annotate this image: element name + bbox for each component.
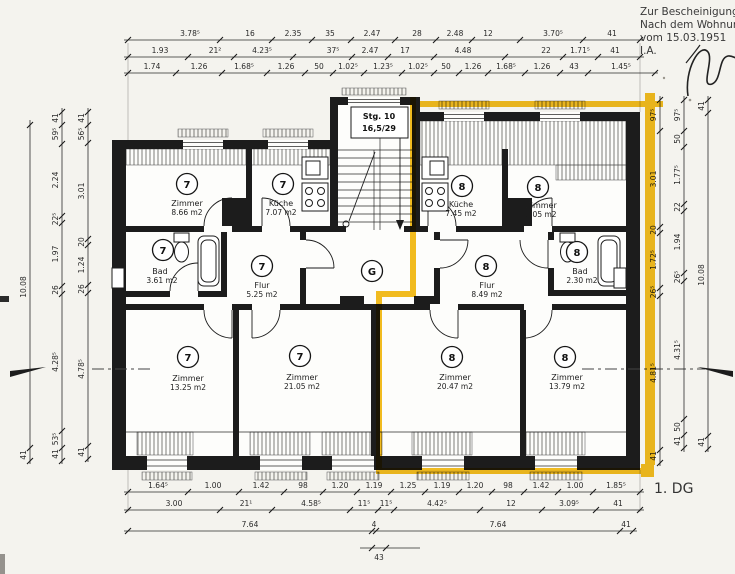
- dimension-label: 3.09⁵: [559, 499, 579, 508]
- dimension-label: 7.64: [242, 520, 259, 529]
- dimension-label: 41: [610, 46, 620, 55]
- radiator: [112, 268, 124, 288]
- room-name: Zimmer: [439, 373, 471, 382]
- dimension-label: 4.42⁵: [427, 499, 447, 508]
- room-unit: 8: [459, 182, 466, 193]
- dimension-label: 4.78⁵: [77, 359, 86, 379]
- dimension-label: 41: [697, 437, 706, 447]
- dimension-label: 1.64⁵: [148, 481, 168, 490]
- room-name: Flur: [254, 281, 270, 290]
- dimension-label: 98: [503, 481, 513, 490]
- room-name: Zimmer: [551, 373, 583, 382]
- dimension-label: 50: [673, 134, 682, 144]
- dimension-label: 1.26: [534, 62, 551, 71]
- dimension-label: 37⁵: [327, 46, 340, 55]
- room-name: Flur: [479, 281, 495, 290]
- dimension-label: 1.23⁵: [373, 62, 393, 71]
- dimension-label: 41: [613, 499, 623, 508]
- right-dimension-chains: 97⁵3.01201.72⁵26⁵4.81⁵41 97⁵501.77⁵221.9…: [649, 96, 711, 466]
- stair-label-2: 16,5/29: [362, 124, 396, 133]
- note-line-3: vom 15.03.1951: [640, 32, 726, 44]
- dimension-label: 50: [673, 422, 682, 432]
- dimension-label: 1.68⁵: [496, 62, 516, 71]
- dimension-label: 1.24: [77, 256, 86, 273]
- dimension-label: 4.31⁵: [673, 340, 682, 360]
- dimension-label: 50: [314, 62, 324, 71]
- room-area: 21.05 m2: [284, 382, 320, 391]
- dimension-label: 41: [51, 113, 60, 123]
- dimension-label: 1.68⁵: [234, 62, 254, 71]
- window: [142, 456, 192, 480]
- dimension-label: 98: [298, 481, 308, 490]
- dimension-label: 11⁵: [358, 499, 371, 508]
- corridor-letter: G: [368, 267, 376, 278]
- dimension-label: 26: [77, 284, 86, 294]
- dimension-label: 1.02⁵: [338, 62, 358, 71]
- top-dimension-chains: 3.78⁵162.35352.47282.48123.70⁵41 1.9321²…: [124, 29, 658, 76]
- dimension-label: 1.00: [205, 481, 222, 490]
- dimension-label: 21¹: [240, 499, 253, 508]
- room-area: 7.45 m2: [445, 209, 476, 218]
- section-arrow-left: [10, 367, 46, 377]
- dimension-label: 41: [697, 101, 706, 111]
- window: [263, 129, 313, 149]
- dimension-label: 3.70⁵: [543, 29, 563, 38]
- dimension-label: 1.42: [253, 481, 270, 490]
- room-unit: 7: [185, 353, 192, 364]
- kitchen-8-fixtures: [422, 157, 448, 211]
- room-unit: 8: [535, 183, 542, 194]
- section-arrow-right: [697, 367, 733, 377]
- dimension-label: 1.26: [465, 62, 482, 71]
- dimension-label: 3.78⁵: [180, 29, 200, 38]
- dimension-label: 4: [372, 520, 377, 529]
- room-name: Zimmer: [172, 374, 204, 383]
- dimension-label: 41: [673, 436, 682, 446]
- dimension-label: 1.74: [144, 62, 161, 71]
- dimension-label: 97⁵: [673, 109, 682, 122]
- dimension-label: 28: [412, 29, 422, 38]
- dimension-label: 11⁵: [380, 499, 393, 508]
- dimension-label: 22: [541, 46, 551, 55]
- dimension-label: 50: [441, 62, 451, 71]
- room-area: 8.49 m2: [471, 290, 502, 299]
- dimension-label: 10.08: [19, 276, 28, 298]
- room-unit: 8: [483, 262, 490, 273]
- highlight-right-bar: [645, 93, 655, 465]
- dimension-label: 4.23⁵: [252, 46, 272, 55]
- room-unit: 7: [297, 352, 304, 363]
- dimension-label: 2.47: [364, 29, 381, 38]
- room-unit: 8: [449, 353, 456, 364]
- room-area: 13.79 m2: [549, 382, 585, 391]
- room-name: Zimmer: [171, 199, 203, 208]
- dimension-label: 3.00: [166, 499, 183, 508]
- room-unit: 7: [280, 180, 287, 191]
- dimension-label: 26: [51, 285, 60, 295]
- dimension-label: 16: [245, 29, 255, 38]
- dimension-label: 7.64: [490, 520, 507, 529]
- dimension-label: 1.45⁵: [611, 62, 631, 71]
- dimension-label: 1.77⁵: [673, 165, 682, 185]
- dimension-label: 1.19: [434, 481, 451, 490]
- window: [327, 456, 379, 480]
- dimension-label: 1.19: [366, 481, 383, 490]
- note-line-1: Zur Bescheinigung: [640, 6, 735, 18]
- dimension-label: 59⁵: [51, 128, 60, 141]
- room-area: 8.66 m2: [171, 208, 202, 217]
- dimension-label: 1.20: [332, 481, 349, 490]
- window: [342, 88, 406, 105]
- dimension-label: 1.02⁵: [408, 62, 428, 71]
- dimension-label: 43: [374, 553, 384, 562]
- room-unit: 7: [184, 180, 191, 191]
- room-area: 7.07 m2: [265, 208, 296, 217]
- dimension-label: 41: [77, 113, 86, 123]
- floor-plan-sheet: Stg. 10 16,5/29 7: [0, 0, 735, 574]
- radiator: [614, 268, 626, 288]
- room-name: Zimmer: [286, 373, 318, 382]
- dimension-label: 1.94: [673, 233, 682, 250]
- dimension-label: 41: [19, 450, 28, 460]
- dimension-label: 2.47: [362, 46, 379, 55]
- room-name: Bad: [572, 267, 587, 276]
- left-dimension-chains: 10.0841 4159⁵2.2422⁵1.97264.28⁵53⁵41 415…: [19, 108, 91, 464]
- dimension-label: 17: [400, 46, 410, 55]
- note-line-4: I.A.: [640, 45, 657, 57]
- room-unit: 7: [259, 262, 266, 273]
- dimension-label: 41: [51, 449, 60, 459]
- certification-note: Zur Bescheinigung Nach dem Wohnun vom 15…: [640, 6, 735, 96]
- dimension-label: 1.97: [51, 245, 60, 262]
- dimension-label: 41: [77, 447, 86, 457]
- dimension-label: 1.00: [567, 481, 584, 490]
- dimension-label: 1.85⁵: [606, 481, 626, 490]
- corridor-label: G: [362, 261, 383, 282]
- dimension-label: 26⁵: [673, 271, 682, 284]
- dimension-label: 1.26: [191, 62, 208, 71]
- window: [255, 456, 307, 480]
- dimension-label: 20: [77, 237, 86, 247]
- dimension-label: 1.42: [533, 481, 550, 490]
- room-name: Küche: [449, 200, 473, 209]
- room-unit: 7: [160, 246, 167, 257]
- dimension-label: 41: [607, 29, 617, 38]
- window: [178, 129, 228, 149]
- dimension-label: 4.28⁵: [51, 352, 60, 372]
- dimension-label: 4.58⁵: [301, 499, 321, 508]
- dimension-label: 41: [621, 520, 631, 529]
- dimension-label: 1.26: [278, 62, 295, 71]
- dimension-label: 2.48: [447, 29, 464, 38]
- dimension-label: 53⁵: [51, 433, 60, 446]
- note-line-2: Nach dem Wohnun: [640, 19, 735, 31]
- dimension-label: 1.25: [400, 481, 417, 490]
- room-name: Küche: [269, 199, 293, 208]
- room-area: 9.05 m2: [525, 210, 556, 219]
- room-area: 13.25 m2: [170, 383, 206, 392]
- dimension-label: 4.48: [455, 46, 472, 55]
- floor-label: 1. DG: [654, 481, 693, 497]
- room-area: 3.61 m2: [146, 276, 177, 285]
- dimension-label: 12: [483, 29, 493, 38]
- stair-label-1: Stg. 10: [363, 112, 396, 121]
- dimension-label: 12: [506, 499, 516, 508]
- dimension-label: 35: [325, 29, 335, 38]
- room-area: 2.30 m2: [566, 276, 597, 285]
- dimension-label: 2.24: [51, 171, 60, 188]
- kitchen-7-fixtures: [302, 157, 328, 211]
- dimension-label: 43: [569, 62, 579, 71]
- dimension-label: 1.93: [152, 46, 169, 55]
- signature: [687, 50, 735, 96]
- dimension-label: 21²: [209, 46, 222, 55]
- dimension-label: 3.01: [77, 182, 86, 199]
- room-area: 20.47 m2: [437, 382, 473, 391]
- room-name: Bad: [152, 267, 167, 276]
- dimension-label: 2.35: [285, 29, 302, 38]
- dimension-label: 10.08: [697, 264, 706, 286]
- dimension-label: 22: [673, 202, 682, 212]
- room-unit: 8: [562, 353, 569, 364]
- dimension-label: 1.71⁵: [570, 46, 590, 55]
- dimension-label: 1.20: [467, 481, 484, 490]
- room-area: 5.25 m2: [246, 290, 277, 299]
- dimension-label: 56⁵: [77, 128, 86, 141]
- room-name: Zimmer: [525, 201, 557, 210]
- bottom-dimension-chains: 1.64⁵1.001.42981.201.191.251.191.20981.4…: [124, 481, 644, 562]
- dimension-label: 22⁵: [51, 213, 60, 226]
- room-unit: 8: [574, 248, 581, 259]
